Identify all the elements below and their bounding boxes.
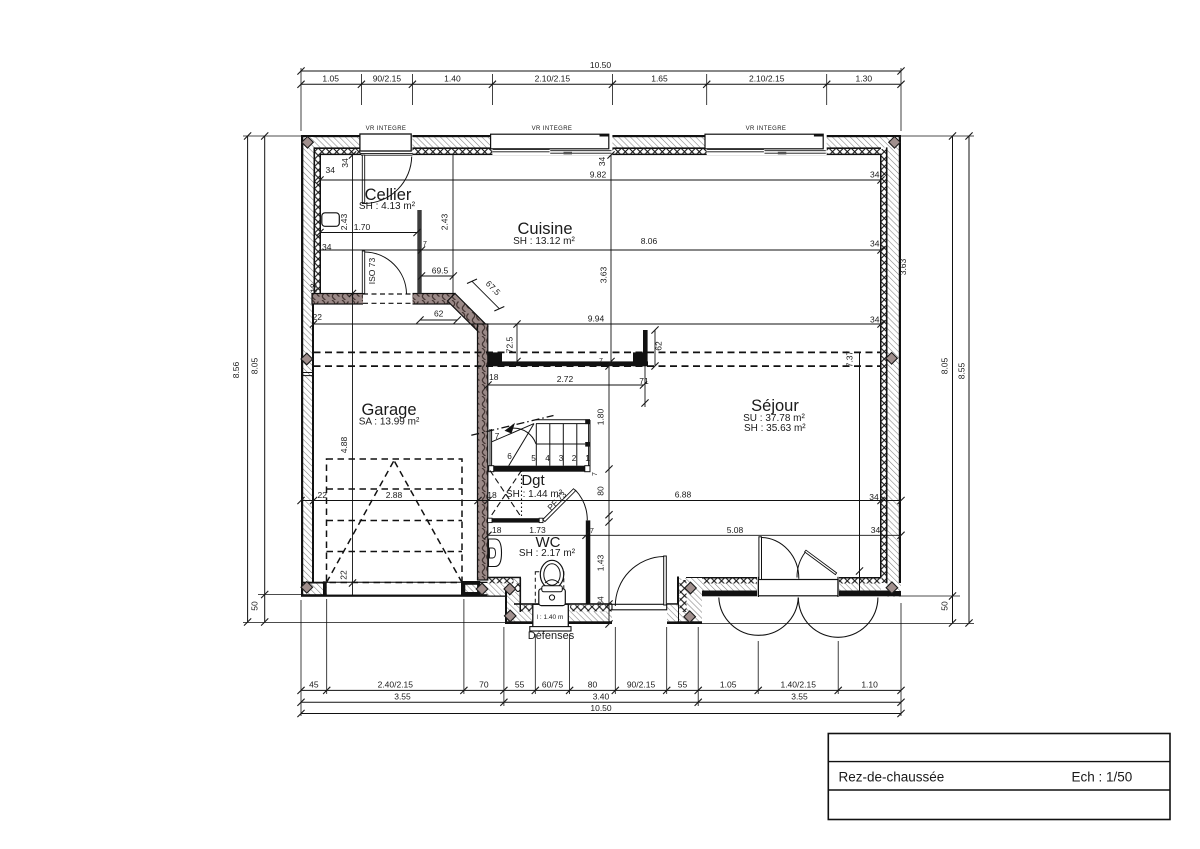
svg-text:4: 4 xyxy=(545,454,550,463)
svg-text:Défenses: Défenses xyxy=(528,630,575,642)
svg-text:22: 22 xyxy=(339,570,349,580)
svg-text:3.63: 3.63 xyxy=(898,258,908,275)
svg-text:SH : 4.13 m²: SH : 4.13 m² xyxy=(359,201,416,212)
svg-text:1.73: 1.73 xyxy=(529,525,546,535)
svg-text:2.43: 2.43 xyxy=(440,213,450,230)
svg-text:SH : 13.12 m²: SH : 13.12 m² xyxy=(513,236,575,247)
svg-text:5: 5 xyxy=(531,454,536,463)
svg-text:6: 6 xyxy=(507,452,512,461)
svg-text:22: 22 xyxy=(313,312,323,322)
svg-text:9.82: 9.82 xyxy=(590,170,607,180)
svg-text:3.63: 3.63 xyxy=(599,266,609,283)
svg-text:2.43: 2.43 xyxy=(339,213,349,230)
svg-text:1.05: 1.05 xyxy=(720,680,737,690)
svg-text:62: 62 xyxy=(654,341,664,351)
svg-text:8.56: 8.56 xyxy=(231,361,241,378)
svg-text:22: 22 xyxy=(318,490,328,500)
svg-text:ISO 73: ISO 73 xyxy=(367,258,377,285)
svg-text:34: 34 xyxy=(870,315,880,325)
svg-text:80: 80 xyxy=(596,486,606,496)
svg-text:90/2.15: 90/2.15 xyxy=(627,680,656,690)
svg-text:4.88: 4.88 xyxy=(339,436,349,453)
svg-text:VR INTEGRE: VR INTEGRE xyxy=(746,126,787,132)
svg-text:8.05: 8.05 xyxy=(250,357,260,374)
svg-text:3.55: 3.55 xyxy=(791,692,808,702)
svg-text:Ech : 1/50: Ech : 1/50 xyxy=(1072,770,1133,785)
svg-text:5.08: 5.08 xyxy=(727,525,744,535)
svg-text:34: 34 xyxy=(322,242,332,252)
svg-text:8.06: 8.06 xyxy=(641,236,658,246)
svg-text:3.55: 3.55 xyxy=(394,692,411,702)
svg-text:34: 34 xyxy=(596,596,606,606)
svg-text:Dgt: Dgt xyxy=(521,472,545,489)
svg-text:1.43: 1.43 xyxy=(596,554,606,571)
svg-text:50: 50 xyxy=(940,601,950,611)
svg-text:34: 34 xyxy=(340,158,350,168)
svg-text:90/2.15: 90/2.15 xyxy=(373,74,402,84)
svg-text:2.10/2.15: 2.10/2.15 xyxy=(749,74,785,84)
svg-text:SH : 2.17 m²: SH : 2.17 m² xyxy=(519,548,576,559)
svg-text:2.72: 2.72 xyxy=(557,374,574,384)
svg-text:7: 7 xyxy=(592,472,599,476)
svg-text:1.30: 1.30 xyxy=(856,74,873,84)
svg-text:72.5: 72.5 xyxy=(505,336,515,353)
svg-text:2.40/2.15: 2.40/2.15 xyxy=(378,680,414,690)
svg-text:2: 2 xyxy=(572,454,577,463)
svg-text:10.50: 10.50 xyxy=(590,60,612,70)
svg-text:7: 7 xyxy=(495,432,500,441)
svg-text:80: 80 xyxy=(588,680,598,690)
svg-text:1.70: 1.70 xyxy=(354,222,371,232)
svg-text:55: 55 xyxy=(678,680,688,690)
svg-text:SH : 1.44 m²: SH : 1.44 m² xyxy=(506,489,563,500)
svg-text:34: 34 xyxy=(869,492,879,502)
svg-text:1.10: 1.10 xyxy=(861,680,878,690)
svg-text:l : 1.40 m: l : 1.40 m xyxy=(537,614,564,621)
svg-text:7: 7 xyxy=(423,241,427,248)
svg-text:3: 3 xyxy=(559,454,564,463)
svg-text:7: 7 xyxy=(599,358,603,365)
svg-text:50: 50 xyxy=(250,601,260,611)
svg-text:Rez-de-chaussée: Rez-de-chaussée xyxy=(839,770,945,785)
svg-text:34: 34 xyxy=(326,165,336,175)
svg-text:10.50: 10.50 xyxy=(590,703,612,713)
svg-text:18: 18 xyxy=(492,525,502,535)
svg-text:1.05: 1.05 xyxy=(322,74,339,84)
svg-text:8.55: 8.55 xyxy=(957,362,967,379)
svg-text:SA : 13.99 m²: SA : 13.99 m² xyxy=(359,417,420,428)
svg-text:VR INTEGRE: VR INTEGRE xyxy=(532,126,573,132)
svg-text:18: 18 xyxy=(309,283,319,293)
svg-text:VR INTEGRE: VR INTEGRE xyxy=(366,126,407,132)
svg-text:71: 71 xyxy=(639,376,649,386)
svg-text:70: 70 xyxy=(479,680,489,690)
svg-text:1.40: 1.40 xyxy=(444,74,461,84)
svg-text:34: 34 xyxy=(597,157,607,167)
svg-text:9.94: 9.94 xyxy=(588,314,605,324)
svg-text:3.40: 3.40 xyxy=(593,692,610,702)
svg-text:45: 45 xyxy=(309,680,319,690)
svg-text:SH : 35.63 m²: SH : 35.63 m² xyxy=(744,423,806,434)
svg-text:34: 34 xyxy=(871,525,881,535)
svg-text:18: 18 xyxy=(489,372,499,382)
svg-text:18: 18 xyxy=(487,490,497,500)
svg-text:34: 34 xyxy=(870,239,880,249)
svg-text:69.5: 69.5 xyxy=(432,266,449,276)
svg-text:8.05: 8.05 xyxy=(940,357,950,374)
svg-text:1.40/2.15: 1.40/2.15 xyxy=(780,680,816,690)
svg-text:34: 34 xyxy=(870,170,880,180)
svg-text:6.88: 6.88 xyxy=(675,490,692,500)
svg-text:7: 7 xyxy=(590,528,594,535)
svg-text:62: 62 xyxy=(434,309,444,319)
svg-text:55: 55 xyxy=(515,680,525,690)
svg-text:7.37: 7.37 xyxy=(845,350,855,367)
svg-text:1.80: 1.80 xyxy=(596,408,606,425)
svg-text:1.65: 1.65 xyxy=(651,74,668,84)
svg-text:1: 1 xyxy=(585,454,590,463)
svg-text:2.10/2.15: 2.10/2.15 xyxy=(535,74,571,84)
svg-text:60/75: 60/75 xyxy=(542,680,564,690)
svg-text:2.88: 2.88 xyxy=(386,490,403,500)
